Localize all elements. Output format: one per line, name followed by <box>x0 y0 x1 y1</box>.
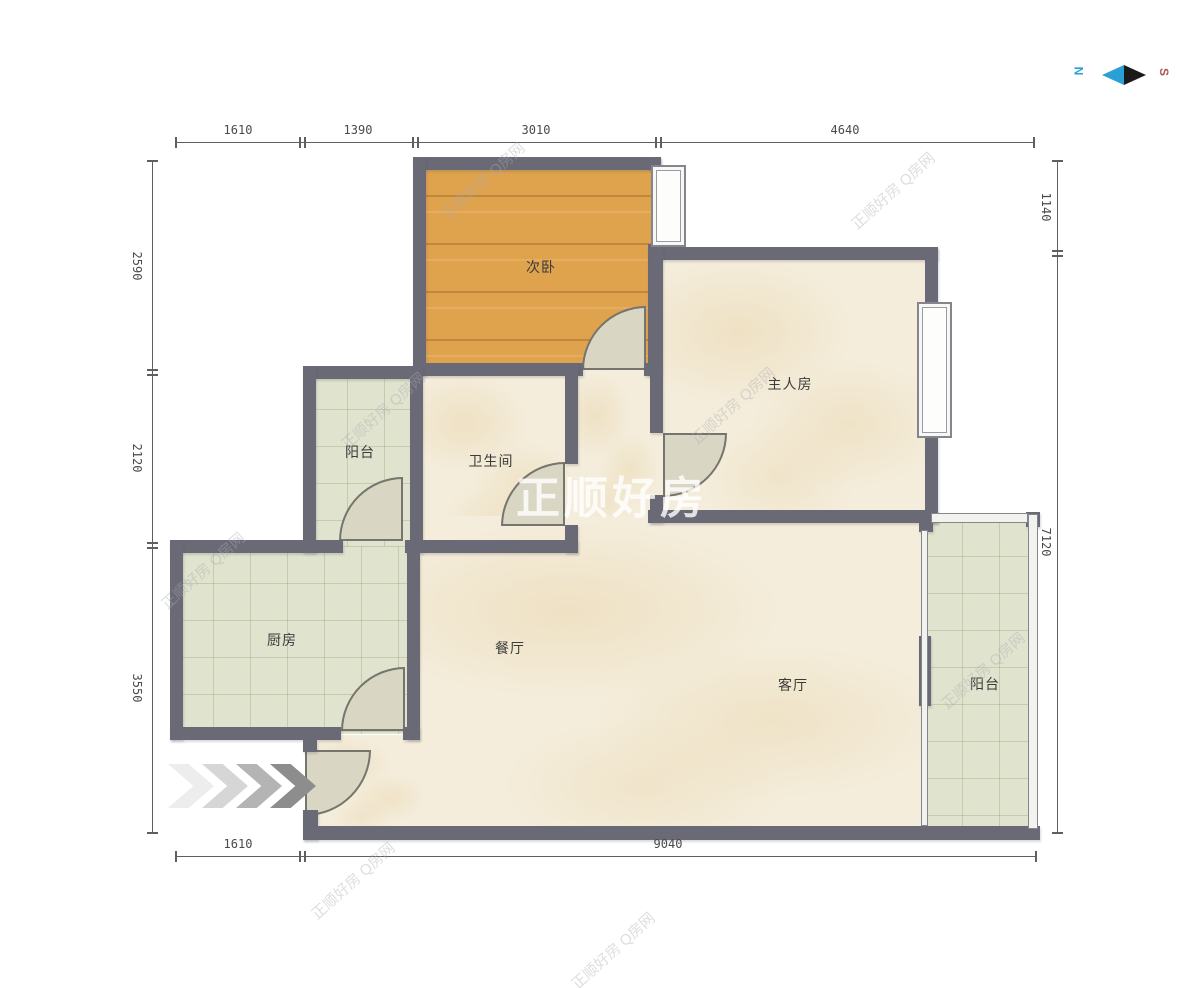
dim-tick <box>147 832 158 834</box>
watermark-small: 正顺好房 Q房网 <box>847 147 940 233</box>
dim-label-left-2: 2120 <box>130 444 144 473</box>
dim-line-left <box>152 160 153 832</box>
dim-label-top-3: 3010 <box>522 123 551 137</box>
dim-tick <box>412 137 414 148</box>
wall-mid-horizontal-right <box>405 540 578 553</box>
dim-label-bottom-1: 1610 <box>224 837 253 851</box>
window-bedroom2 <box>651 165 686 247</box>
wall-kitchen-bottom <box>170 727 341 740</box>
dim-tick <box>1052 250 1063 252</box>
wall-master-left-upper <box>650 247 663 433</box>
dim-label-bottom-2: 9040 <box>654 837 683 851</box>
dim-label-top-1: 1610 <box>224 123 253 137</box>
window-living-balcony-divider <box>921 530 928 826</box>
dim-tick <box>660 137 662 148</box>
entry-arrow-icon <box>168 764 214 808</box>
dim-tick <box>304 137 306 148</box>
compass-south-label: S <box>1157 68 1171 76</box>
compass: N S <box>1060 52 1190 98</box>
wall-mid-horizontal-left <box>170 540 343 553</box>
dim-label-top-2: 1390 <box>344 123 373 137</box>
dim-tick <box>147 547 158 549</box>
dim-tick <box>1033 137 1035 148</box>
window-balcony-right-side <box>1028 514 1038 829</box>
floor-living-dining <box>415 516 925 832</box>
room-label-balcony-right: 阳台 <box>970 674 1000 694</box>
room-label-bathroom: 卫生间 <box>469 451 514 471</box>
wall-master-right-upper <box>925 247 938 307</box>
dim-line-right <box>1057 160 1058 832</box>
room-label-bedroom2: 次卧 <box>526 257 556 277</box>
room-label-balcony-topleft: 阳台 <box>345 442 375 462</box>
dim-tick <box>1035 851 1037 862</box>
dim-tick <box>655 137 657 148</box>
dim-tick <box>175 851 177 862</box>
dim-label-top-4: 4640 <box>831 123 860 137</box>
wall-kitchen-left <box>170 540 183 740</box>
wall-kitchen-right <box>407 553 420 740</box>
dim-tick <box>147 542 158 544</box>
dim-tick <box>417 137 419 148</box>
wall-balcony-bathroom-divider <box>410 366 423 553</box>
dim-tick <box>147 369 158 371</box>
dim-tick <box>175 137 177 148</box>
wall-master-bottom <box>648 510 938 523</box>
room-label-dining: 餐厅 <box>495 638 525 658</box>
dim-tick <box>147 374 158 376</box>
dim-label-left-3: 3550 <box>130 674 144 703</box>
wall-bathroom-right-upper <box>565 363 578 464</box>
wall-balcony-topleft-left <box>303 366 316 553</box>
window-master-inner-frame <box>922 307 947 433</box>
window-balcony-right-top <box>931 513 1028 523</box>
floor-plan: 次卧 主人房 阳台 卫生间 厨房 餐厅 客厅 阳台 1610 1390 3010… <box>0 0 1199 988</box>
dim-label-right-2: 7120 <box>1039 528 1053 557</box>
dim-tick <box>299 851 301 862</box>
dim-tick <box>147 160 158 162</box>
dim-tick <box>299 137 301 148</box>
window-master <box>917 302 952 438</box>
wall-bedroom2-left <box>413 157 426 376</box>
dim-label-right-1: 1140 <box>1039 193 1053 222</box>
wall-entry-left-upper <box>303 740 317 752</box>
dim-tick <box>1052 160 1063 162</box>
floor-hallway <box>570 370 656 523</box>
watermark-small: 正顺好房 Q房网 <box>567 907 660 988</box>
dim-tick <box>1052 832 1063 834</box>
wall-master-top <box>648 247 938 260</box>
dim-tick <box>304 851 306 862</box>
dim-label-left-1: 2590 <box>130 252 144 281</box>
window-bedroom2-inner-frame <box>656 170 681 242</box>
wall-bedroom2-bottom <box>413 363 583 376</box>
compass-needle-icon <box>1102 65 1146 85</box>
compass-north-label: N <box>1071 67 1085 76</box>
room-label-living: 客厅 <box>778 675 808 695</box>
watermark-small: 正顺好房 Q房网 <box>307 837 400 923</box>
room-label-master: 主人房 <box>768 374 813 394</box>
dim-tick <box>1052 255 1063 257</box>
wall-balcony-topleft-top <box>303 366 413 379</box>
room-label-kitchen: 厨房 <box>267 630 297 650</box>
wall-bedroom2-top <box>413 157 661 170</box>
